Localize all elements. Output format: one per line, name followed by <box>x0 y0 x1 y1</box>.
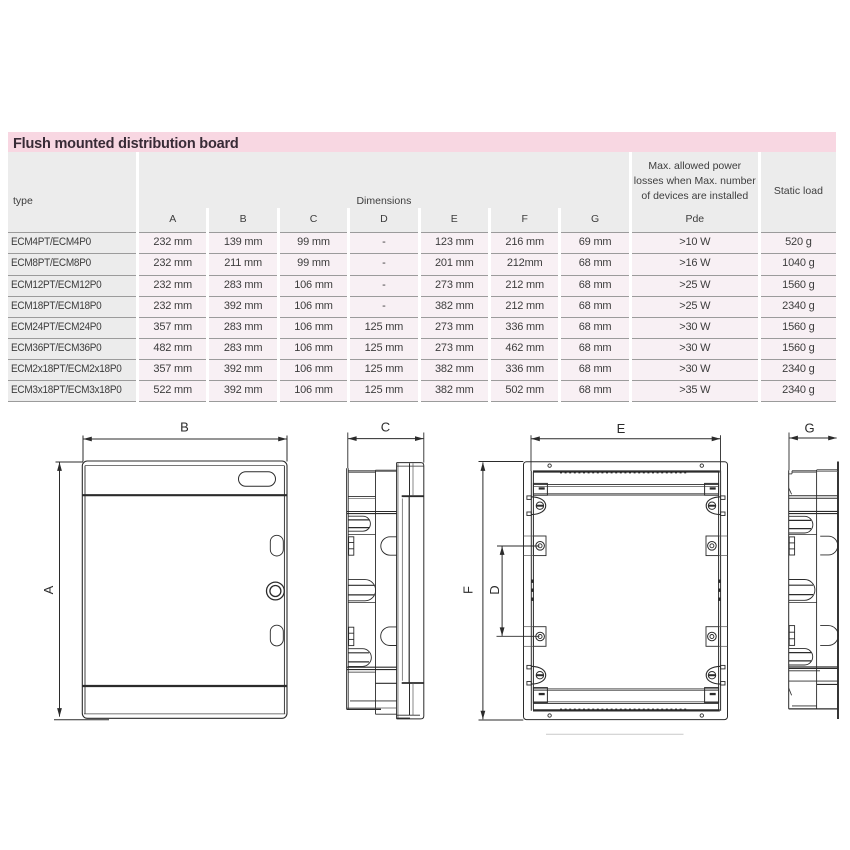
svg-text:F: F <box>461 586 476 594</box>
svg-text:A: A <box>41 585 56 594</box>
svg-text:G: G <box>804 421 814 436</box>
svg-text:E: E <box>617 421 626 436</box>
svg-text:B: B <box>180 420 189 435</box>
svg-text:C: C <box>381 420 390 435</box>
svg-text:D: D <box>487 585 502 594</box>
